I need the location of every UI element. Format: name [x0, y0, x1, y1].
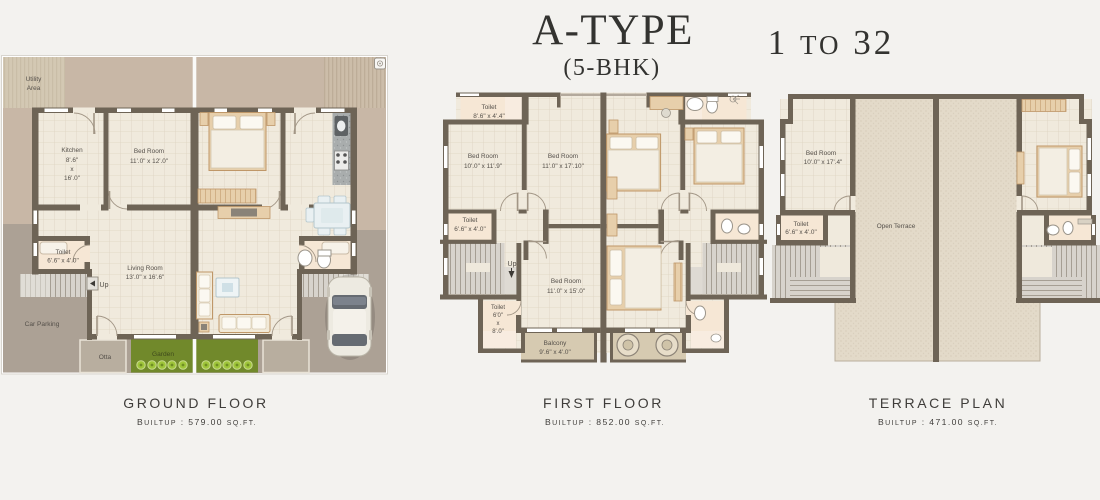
svg-text:8'.6": 8'.6" — [66, 157, 78, 164]
svg-text:Up: Up — [508, 261, 517, 268]
svg-text:11'.0" x 12'.0": 11'.0" x 12'.0" — [130, 158, 168, 165]
svg-text:9'.6" x 4'.0": 9'.6" x 4'.0" — [539, 349, 571, 356]
svg-text:6'.6" x 4'.0": 6'.6" x 4'.0" — [454, 226, 486, 233]
svg-text:GROUND FLOOR: GROUND FLOOR — [123, 395, 269, 411]
svg-text:6'.6" x 4'.0": 6'.6" x 4'.0" — [785, 229, 817, 236]
svg-text:Toilet: Toilet — [491, 305, 505, 311]
svg-text:TERRACE PLAN: TERRACE PLAN — [869, 395, 1008, 411]
svg-text:Bed Room: Bed Room — [806, 150, 836, 157]
svg-text:Open Terrace: Open Terrace — [877, 223, 916, 230]
svg-text:Toilet: Toilet — [56, 249, 71, 256]
svg-text:Garden: Garden — [152, 351, 174, 358]
svg-text:Utility: Utility — [26, 76, 42, 83]
svg-text:(5-BHK): (5-BHK) — [563, 55, 660, 81]
svg-text:11'.0" x 17'.10": 11'.0" x 17'.10" — [542, 163, 584, 170]
svg-text:6'0": 6'0" — [493, 313, 503, 319]
svg-text:16'.0": 16'.0" — [64, 175, 80, 182]
svg-text:Balcony: Balcony — [544, 340, 568, 347]
svg-text:Bed Room: Bed Room — [548, 153, 578, 160]
svg-text:11'.0" x 15'.0": 11'.0" x 15'.0" — [547, 288, 585, 295]
svg-text:FIRST FLOOR: FIRST FLOOR — [543, 395, 664, 411]
svg-text:Kitchen: Kitchen — [61, 147, 83, 154]
svg-text:8'.6" x 4'.4": 8'.6" x 4'.4" — [473, 113, 505, 120]
svg-text:Otta: Otta — [99, 354, 112, 361]
svg-text:10'.0" x 17'.4": 10'.0" x 17'.4" — [804, 159, 843, 166]
svg-text:Bed Room: Bed Room — [468, 153, 498, 160]
svg-text:Toilet: Toilet — [463, 217, 478, 224]
svg-text:6'.6" x 4'.0": 6'.6" x 4'.0" — [47, 258, 79, 265]
svg-text:Up: Up — [100, 282, 109, 289]
svg-text:Area: Area — [27, 85, 41, 92]
svg-text:Living Room: Living Room — [127, 265, 163, 272]
svg-text:10'.0" x 11'.9": 10'.0" x 11'.9" — [464, 163, 502, 170]
svg-text:x: x — [497, 321, 500, 327]
svg-text:Car Parking: Car Parking — [25, 321, 60, 328]
svg-text:Toilet: Toilet — [794, 221, 809, 228]
svg-text:8'.0": 8'.0" — [492, 329, 504, 335]
svg-text:A-TYPE: A-TYPE — [532, 7, 694, 54]
svg-text:13'.0" x 16'.6": 13'.0" x 16'.6" — [126, 274, 165, 281]
svg-text:Bed Room: Bed Room — [134, 148, 164, 155]
svg-text:Bed Room: Bed Room — [551, 278, 581, 285]
svg-text:Toilet: Toilet — [482, 104, 497, 111]
